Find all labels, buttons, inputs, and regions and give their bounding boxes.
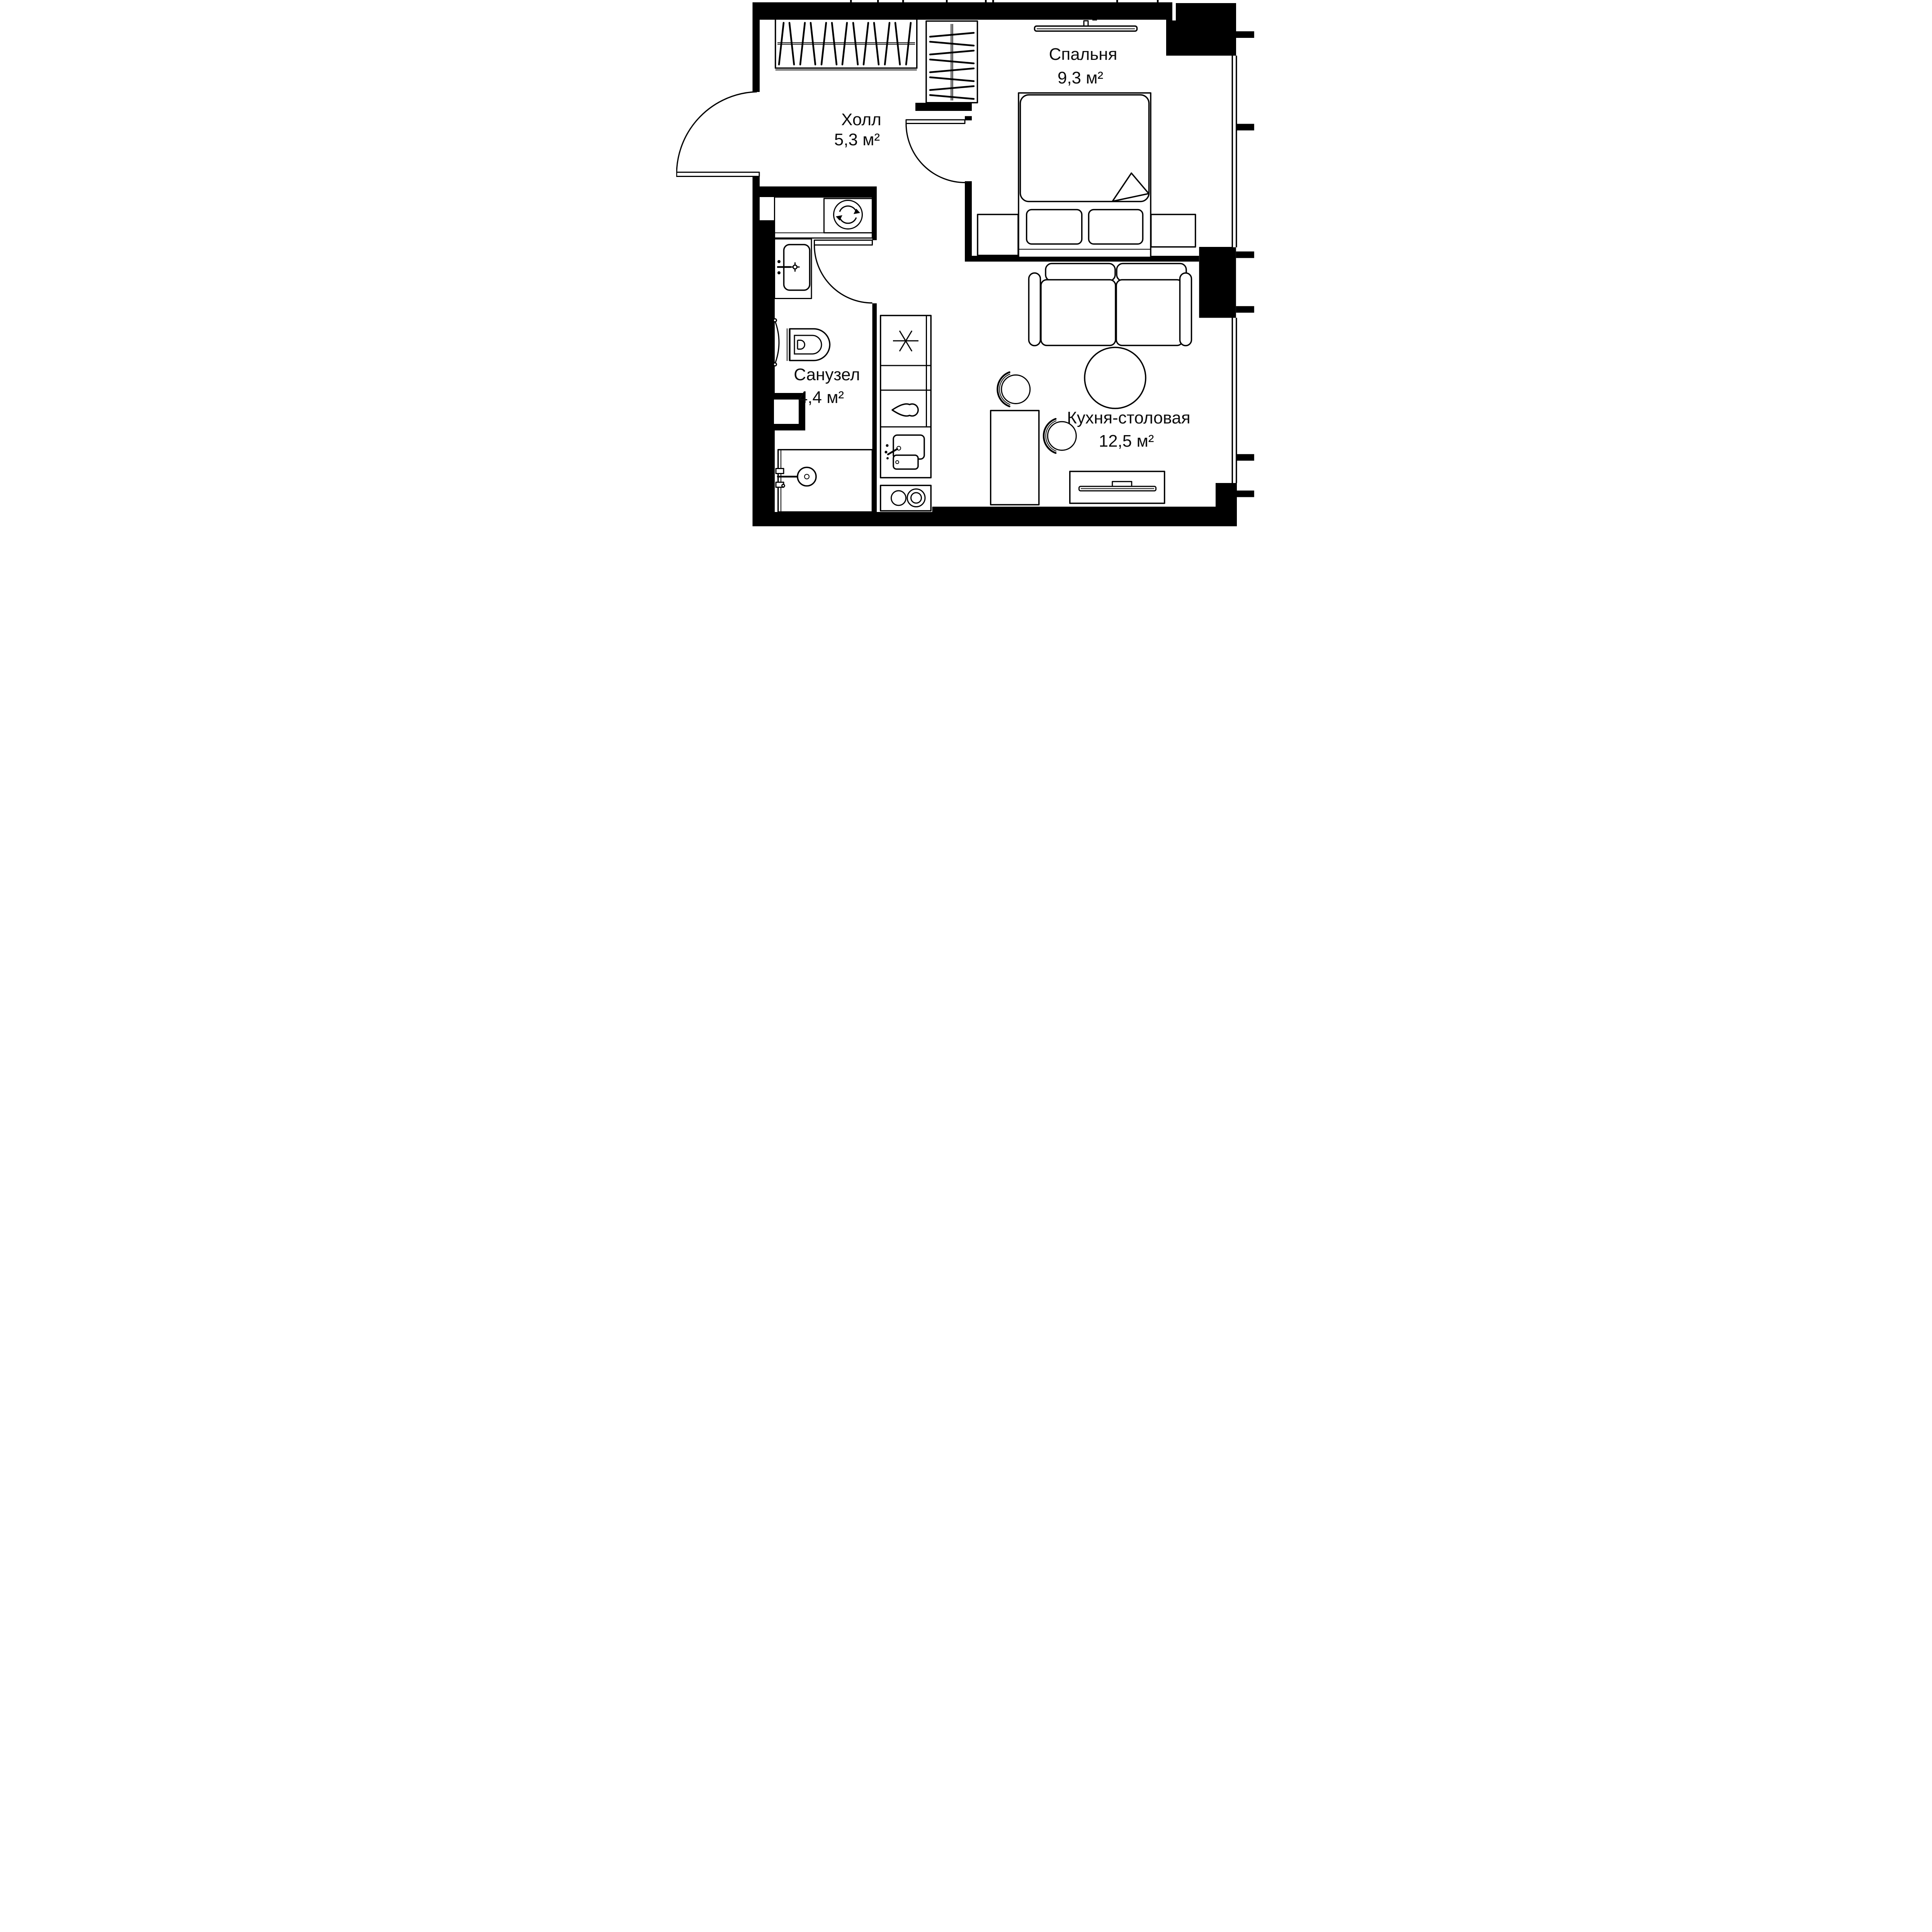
- wall-hung-toilet: [787, 328, 830, 361]
- sofa: [1029, 264, 1192, 346]
- bottom-right-wall-block: [1216, 483, 1237, 526]
- entrance-door-swing-arc: [677, 92, 757, 175]
- bathroom-counter: [775, 197, 872, 238]
- bottom-wall-right: [932, 507, 1237, 526]
- bathroom-right-wall-upper: [872, 187, 877, 240]
- bedroom-door-swing-arc: [906, 124, 965, 183]
- top-right-wall-block: [1166, 3, 1236, 56]
- desk-table: [991, 411, 1039, 505]
- room-label-bedroom: Спальня 9,3 м²: [1049, 45, 1117, 87]
- entrance-door: [677, 92, 759, 177]
- wardrobe-vertical: [926, 21, 978, 103]
- room-label-hall: Холл 5,3 м²: [834, 110, 881, 149]
- room-name: Кухня-столовая: [1067, 408, 1190, 427]
- pillow: [1089, 210, 1143, 244]
- drain-icon: [798, 468, 816, 486]
- sofa-seat-cushion: [1041, 280, 1116, 345]
- shower-tray: [776, 450, 872, 512]
- bathroom-door-leaf: [815, 240, 872, 245]
- sofa-back-cushion: [1046, 264, 1115, 281]
- room-name: Санузел: [794, 365, 860, 384]
- bathroom-door-swing-arc: [815, 245, 872, 303]
- top-wall: [760, 2, 1172, 20]
- sofa-back-cushion: [1117, 264, 1186, 281]
- room-name: Спальня: [1049, 45, 1117, 64]
- sofa-seat-cushion: [1116, 280, 1183, 345]
- shower-mixer-icon: [776, 469, 784, 474]
- bathroom-door: [815, 240, 872, 303]
- room-area: 12,5 м²: [1099, 432, 1154, 451]
- right-pillar: [1199, 247, 1236, 318]
- room-area: 4,4 м²: [798, 388, 844, 407]
- room-name: Холл: [841, 110, 881, 129]
- bedroom-door: [906, 116, 972, 183]
- wall-tv-icon: [1035, 19, 1137, 31]
- bedroom-door-hinge-block: [965, 116, 972, 121]
- room-area: 9,3 м²: [1058, 68, 1103, 87]
- hob-icon: [881, 485, 931, 511]
- pillow: [1027, 210, 1082, 244]
- room-label-bathroom: Санузел 4,4 м²: [794, 365, 860, 407]
- hall-bedroom-wall-stub: [915, 103, 972, 111]
- entrance-door-leaf: [677, 172, 759, 177]
- washing-machine-icon: [824, 199, 872, 233]
- bottom-wall-left: [753, 512, 932, 526]
- left-wall-top: [753, 2, 760, 92]
- kitchen-column: [881, 316, 931, 511]
- bathroom-sink: [775, 239, 812, 298]
- facade-tabs: [1236, 31, 1254, 497]
- bathroom-top-wall: [753, 187, 877, 197]
- double-bed: [1019, 93, 1151, 258]
- chair: [998, 372, 1030, 406]
- hall-bedroom-wall-vertical: [965, 181, 972, 258]
- window-bedroom-icon: [1232, 56, 1237, 247]
- sofa-armrest: [1029, 273, 1041, 346]
- round-dining-table: [1085, 347, 1146, 408]
- tv-console: [1070, 471, 1165, 503]
- bedroom-door-leaf: [906, 120, 965, 124]
- room-area: 5,3 м²: [834, 130, 880, 149]
- room-label-kitchen: Кухня-столовая 12,5 м²: [1067, 408, 1190, 451]
- floor-plan: Спальня 9,3 м² Холл 5,3 м² Санузел 4,4 м…: [676, 0, 1256, 526]
- window-living-icon: [1232, 318, 1237, 483]
- wardrobe-horizontal: [776, 19, 917, 70]
- sofa-armrest: [1180, 273, 1192, 346]
- left-wall-bathroom: [753, 220, 775, 526]
- nightstand-left: [978, 214, 1018, 255]
- nightstand-right: [1151, 214, 1196, 247]
- top-wall-slit: [1172, 2, 1176, 20]
